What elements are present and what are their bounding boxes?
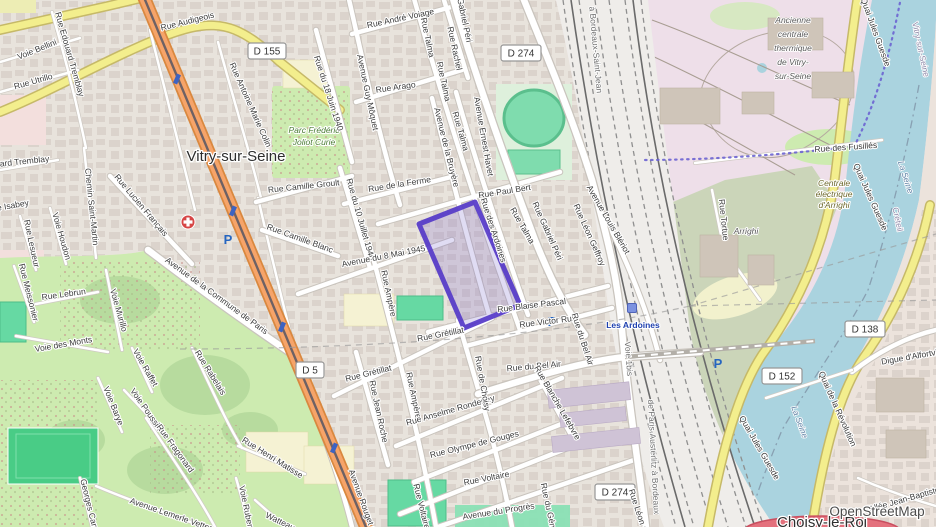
old-thermal-plant-label: Ancienne: [774, 15, 811, 25]
power-station-label: électrique: [816, 189, 853, 199]
station-label: Les Ardoines: [606, 320, 660, 330]
park-label: Joliot Curie: [292, 137, 336, 147]
road-ref-text: D 274: [602, 488, 629, 499]
old-thermal-plant-label: de Vitry-: [777, 57, 809, 67]
old-thermal-plant-label: centrale: [778, 29, 809, 39]
parking-icon: P: [224, 232, 233, 247]
hospital-icon: [181, 215, 195, 229]
city-label-vitry: Vitry-sur-Seine: [187, 148, 286, 165]
old-thermal-plant-label: thermique: [774, 43, 812, 53]
road-ref-text: D 152: [769, 372, 796, 383]
road-ref-badge: D 155: [248, 43, 286, 59]
parking-icon: P: [714, 356, 723, 371]
road-ref-text: D 155: [254, 47, 281, 58]
power-station-label: d'Arrighi: [819, 200, 851, 210]
park-label: Parc Frédéric: [288, 125, 340, 135]
road-ref-badge: D 138: [845, 321, 885, 337]
street-label: Arrighi: [733, 226, 760, 236]
road-ref-text: D 5: [302, 366, 318, 377]
old-thermal-plant-label: sur-Seine: [775, 71, 811, 81]
road-ref-badge: D 152: [762, 368, 802, 384]
attribution-label: OpenStreetMap: [829, 504, 924, 519]
road-ref-badge: D 5: [296, 362, 324, 378]
map-canvas[interactable]: PPP D 155D 274D 5D 274D 138D 152 Voie Be…: [0, 0, 936, 527]
sports-pitch: [397, 296, 443, 320]
station-icon: [628, 304, 637, 313]
road-ref-text: D 138: [852, 325, 879, 336]
osm-map: PPP D 155D 274D 5D 274D 138D 152 Voie Be…: [0, 0, 936, 527]
road-ref-text: D 274: [508, 49, 535, 60]
power-station-label: Centrale: [818, 178, 850, 188]
road-ref-badge: D 274: [501, 45, 541, 61]
